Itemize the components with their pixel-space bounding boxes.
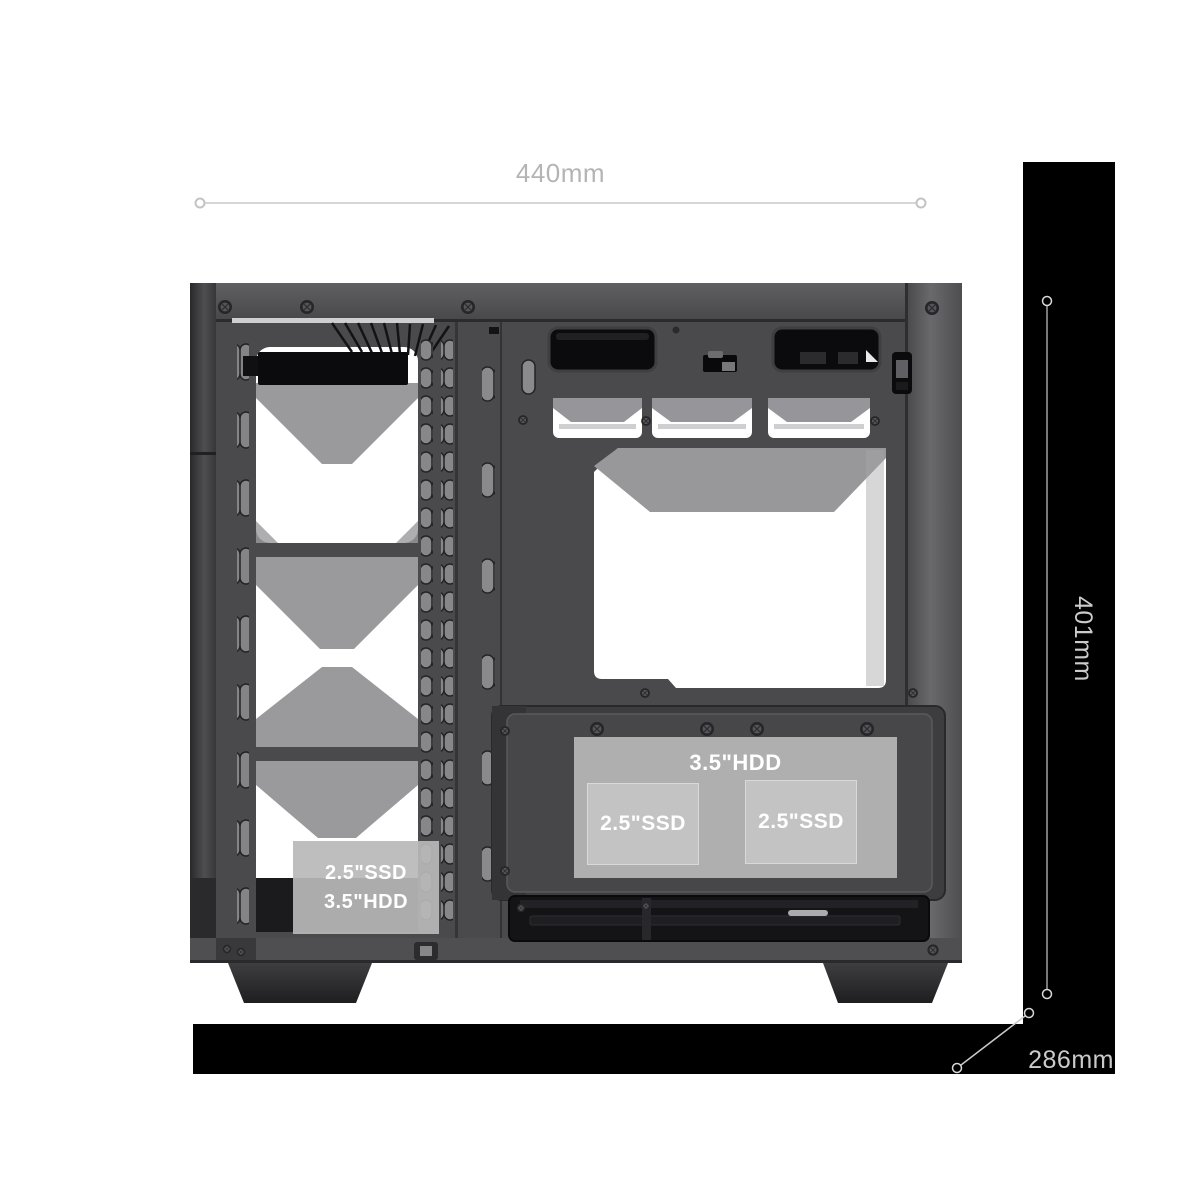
front-bay-ssd-label: 2.5"SSD [325, 859, 407, 888]
hdd-cage-label: 3.5"HDD [574, 737, 897, 776]
front-bay-overlay: 2.5"SSD 3.5"HDD [293, 841, 439, 934]
ssd-slot-left-label: 2.5"SSD [600, 812, 686, 836]
width-dimension-label: 440mm [200, 158, 921, 189]
width-dimension-line [196, 199, 926, 208]
depth-dimension-label: 286mm [1014, 1046, 1114, 1075]
front-bay-hdd-label: 3.5"HDD [324, 888, 408, 917]
hdd-cage-overlay: 3.5"HDD 2.5"SSD 2.5"SSD [574, 737, 897, 878]
height-dimension-label: 401mm [1068, 596, 1097, 682]
ssd-slot-right-label: 2.5"SSD [758, 810, 844, 834]
product-spec-image: 440mm 401mm 286mm 3.5"HDD 2.5"SSD 2.5"SS… [0, 0, 1200, 1200]
ssd-slot-right: 2.5"SSD [745, 780, 857, 864]
height-dimension-line [1043, 297, 1052, 999]
ssd-slot-left: 2.5"SSD [587, 783, 699, 865]
